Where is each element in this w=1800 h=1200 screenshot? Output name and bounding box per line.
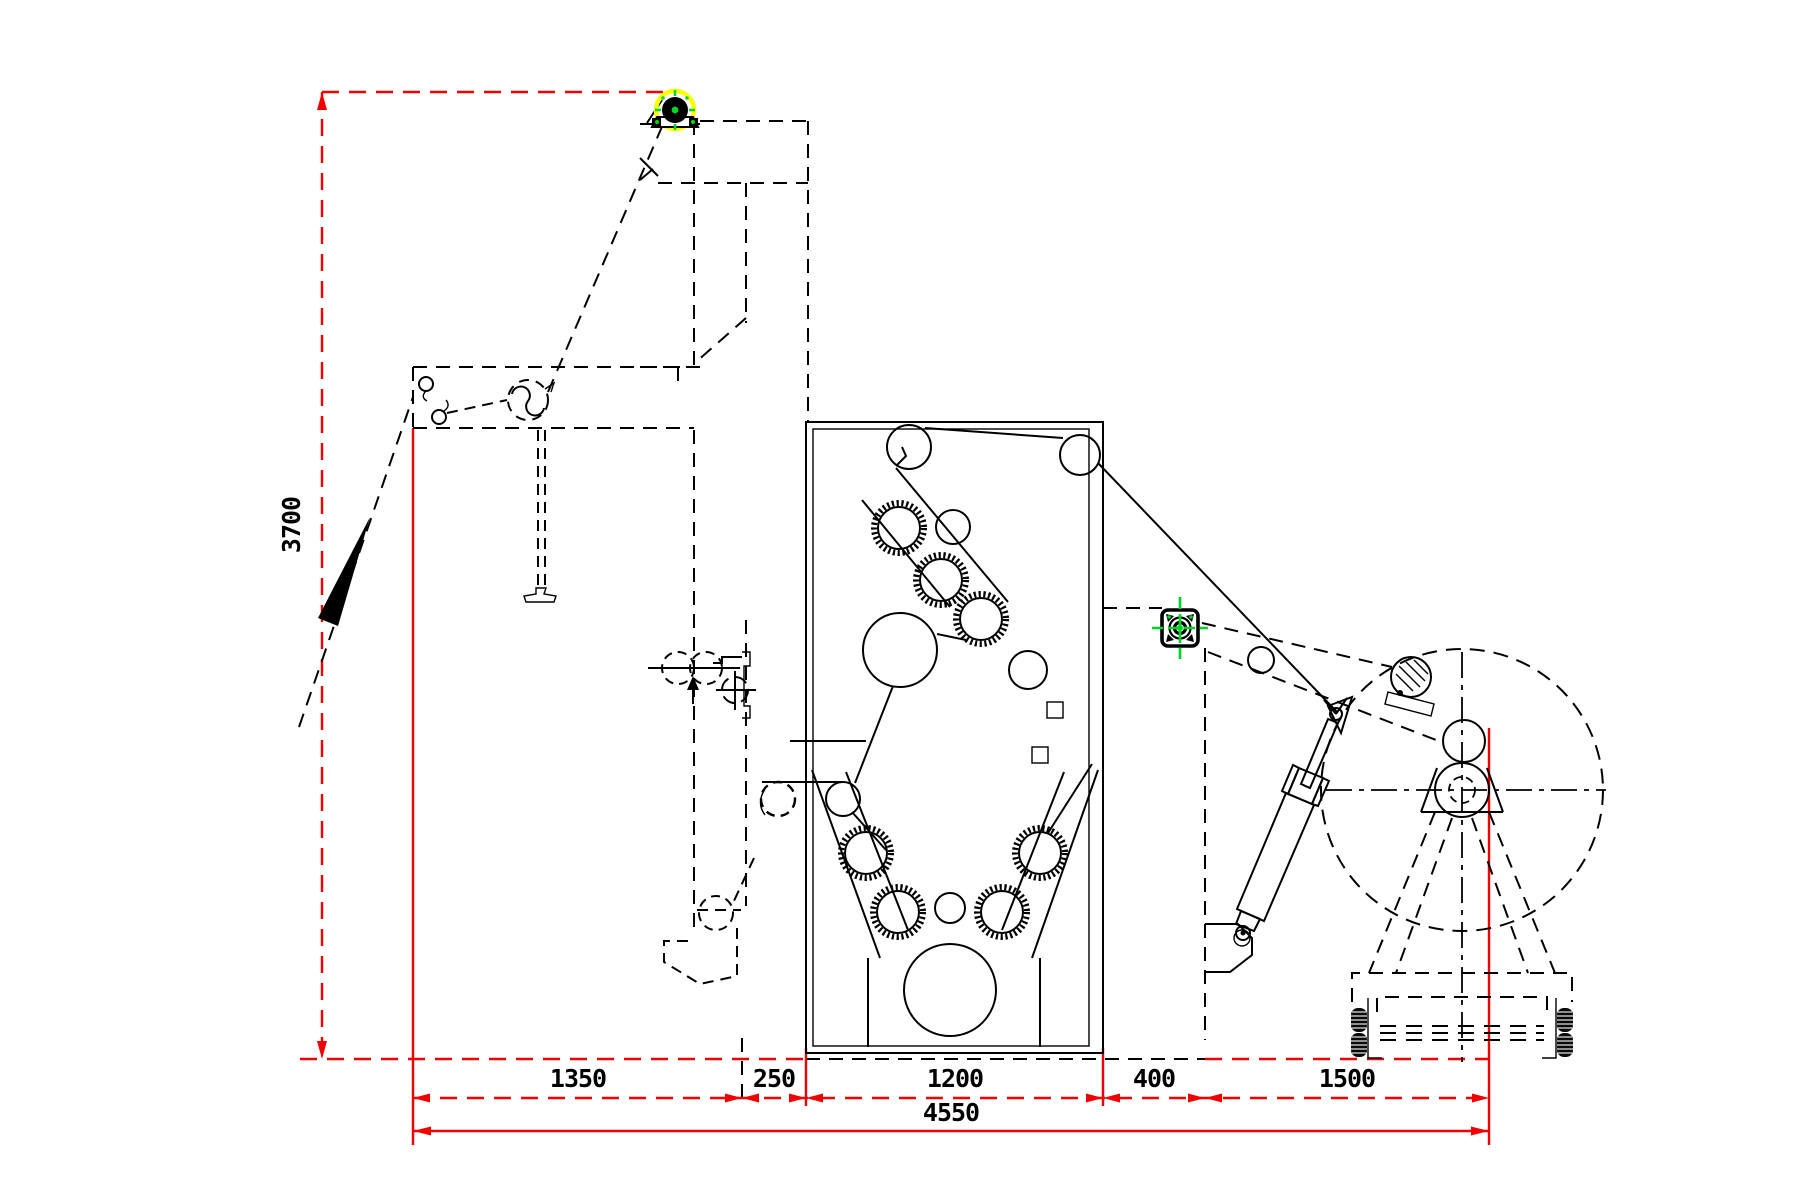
- dim-label-1200: 1200: [927, 1064, 983, 1093]
- dim-label-4550: 4550: [923, 1098, 979, 1127]
- dimension-layer: 3700 1: [277, 92, 1489, 1145]
- cad-drawing-canvas: 3700 1: [0, 0, 1800, 1200]
- lower-print-station: [812, 764, 1098, 1047]
- foot-bracket: [664, 858, 754, 984]
- upper-frame-outline: [640, 121, 808, 930]
- cad-drawing-page: 3700 1: [0, 0, 1800, 1200]
- dim-label-3700: 3700: [277, 497, 306, 553]
- dim-label-1350: 1350: [550, 1064, 606, 1093]
- dim-label-1500: 1500: [1319, 1064, 1375, 1093]
- guide-roller-small: [419, 377, 433, 391]
- web-direction-arrow: [318, 517, 370, 626]
- infeed-frame: [413, 367, 700, 602]
- friction-drive-unit: [1385, 657, 1434, 716]
- guide-roller-small: [432, 410, 446, 424]
- hydraulic-cylinder: [1205, 698, 1347, 972]
- dim-label-400: 400: [1133, 1064, 1175, 1093]
- dim-height-3700: 3700: [277, 92, 664, 1059]
- dim-row-segments: 1350 250 1200 400 1500: [413, 1064, 1489, 1103]
- festoon-roller: [508, 380, 554, 420]
- pivot-bearing-marker: [1103, 597, 1208, 659]
- arm-guide-roller: [1248, 647, 1274, 673]
- unwind-stand-frame: [1202, 623, 1436, 1040]
- top-roller-highlight: [647, 90, 698, 130]
- dancer-assembly: [648, 652, 756, 718]
- dim-total-4550: 4550: [413, 1098, 1489, 1136]
- upper-print-station: [855, 425, 1100, 783]
- unwind-turret: [1321, 649, 1606, 1062]
- web-to-unwinder: [1098, 463, 1352, 733]
- dim-label-250: 250: [753, 1064, 795, 1093]
- support-stand: [524, 430, 556, 602]
- layon-roller: [1443, 720, 1485, 762]
- web-infeed-path: [299, 122, 664, 727]
- press-unit-box: [806, 422, 1103, 1053]
